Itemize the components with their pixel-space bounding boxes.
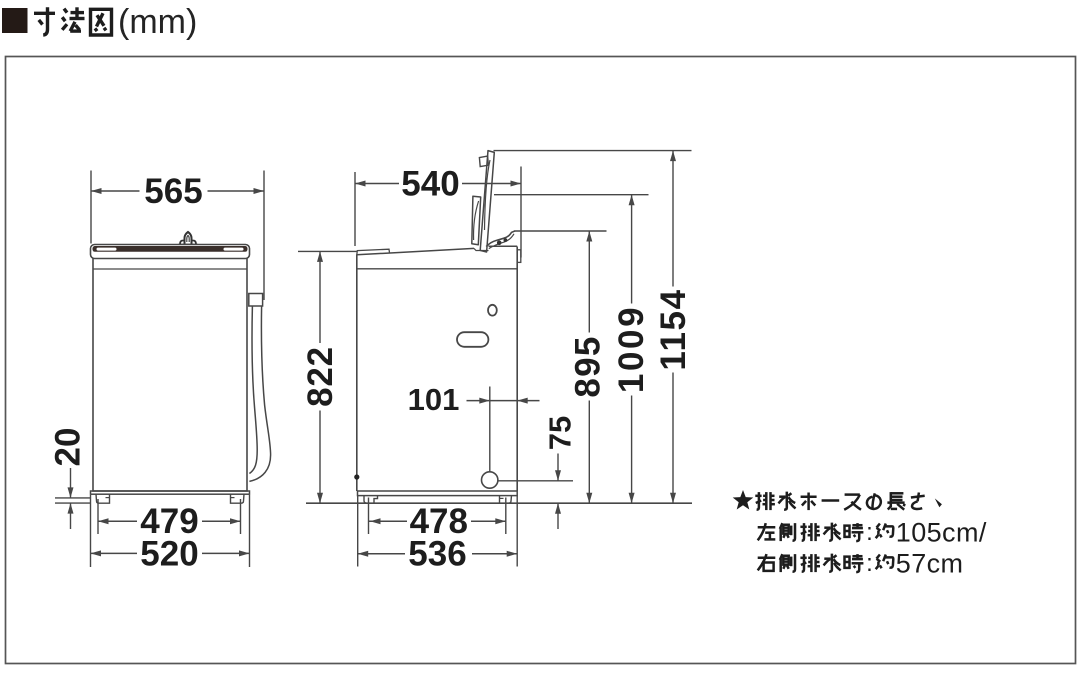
- svg-text:75: 75: [542, 416, 577, 450]
- svg-text:1009: 1009: [612, 305, 651, 393]
- svg-text::: :: [866, 550, 873, 577]
- svg-text:540: 540: [401, 165, 459, 204]
- svg-text:20: 20: [49, 428, 88, 467]
- svg-text:536: 536: [408, 535, 466, 574]
- svg-text:1154: 1154: [654, 288, 693, 370]
- svg-text:57cm: 57cm: [896, 549, 964, 579]
- svg-text:105cm/: 105cm/: [896, 518, 987, 548]
- svg-text:101: 101: [408, 382, 460, 417]
- svg-text:565: 565: [144, 172, 202, 211]
- svg-text:822: 822: [301, 346, 340, 407]
- svg-text:895: 895: [569, 335, 608, 397]
- svg-text:(mm): (mm): [118, 3, 197, 41]
- svg-text::: :: [866, 519, 873, 546]
- svg-text:520: 520: [140, 534, 198, 573]
